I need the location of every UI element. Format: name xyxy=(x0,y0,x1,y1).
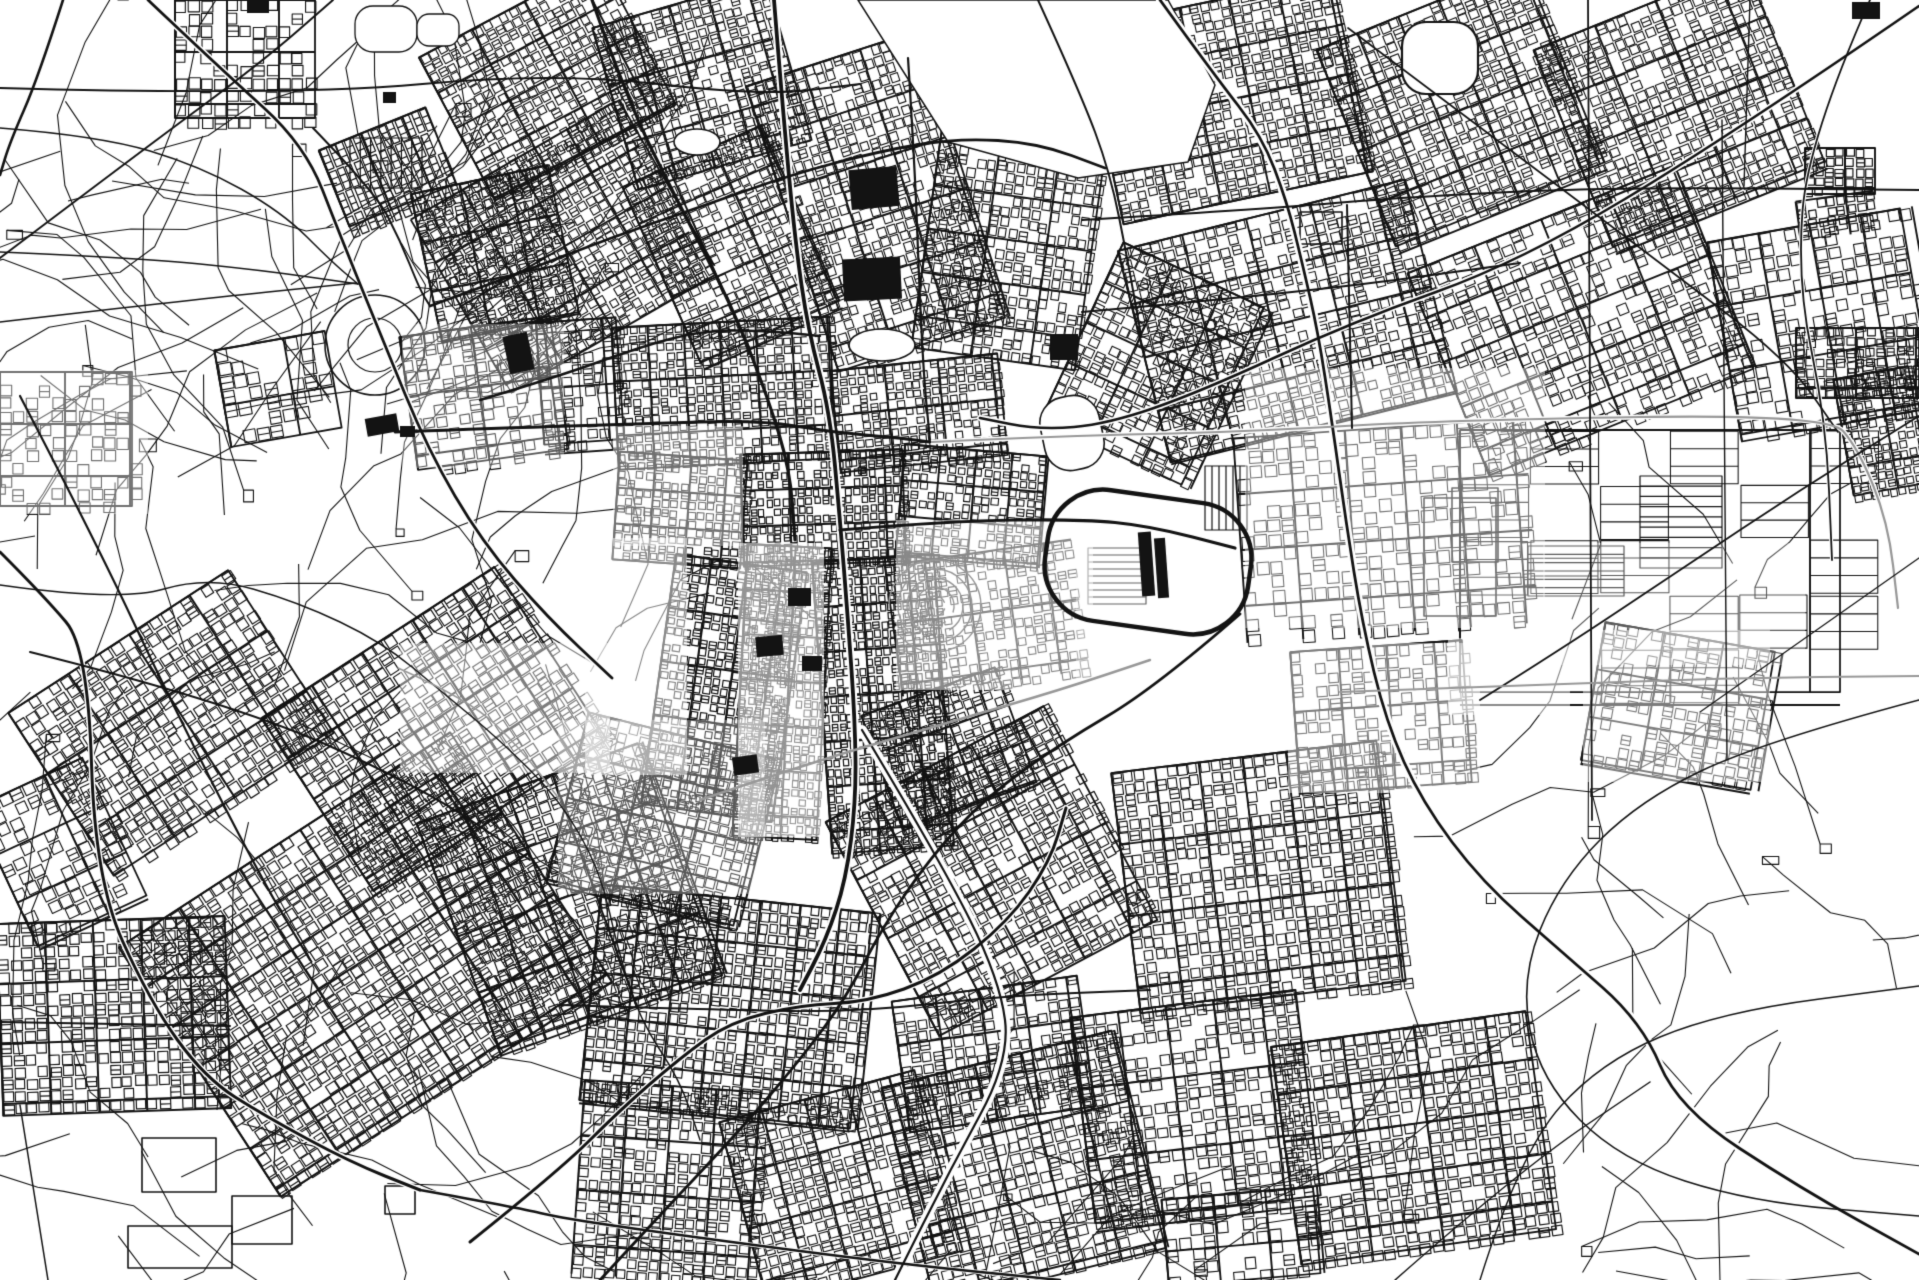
map-image xyxy=(0,0,1919,1280)
map-canvas xyxy=(0,0,1919,1280)
